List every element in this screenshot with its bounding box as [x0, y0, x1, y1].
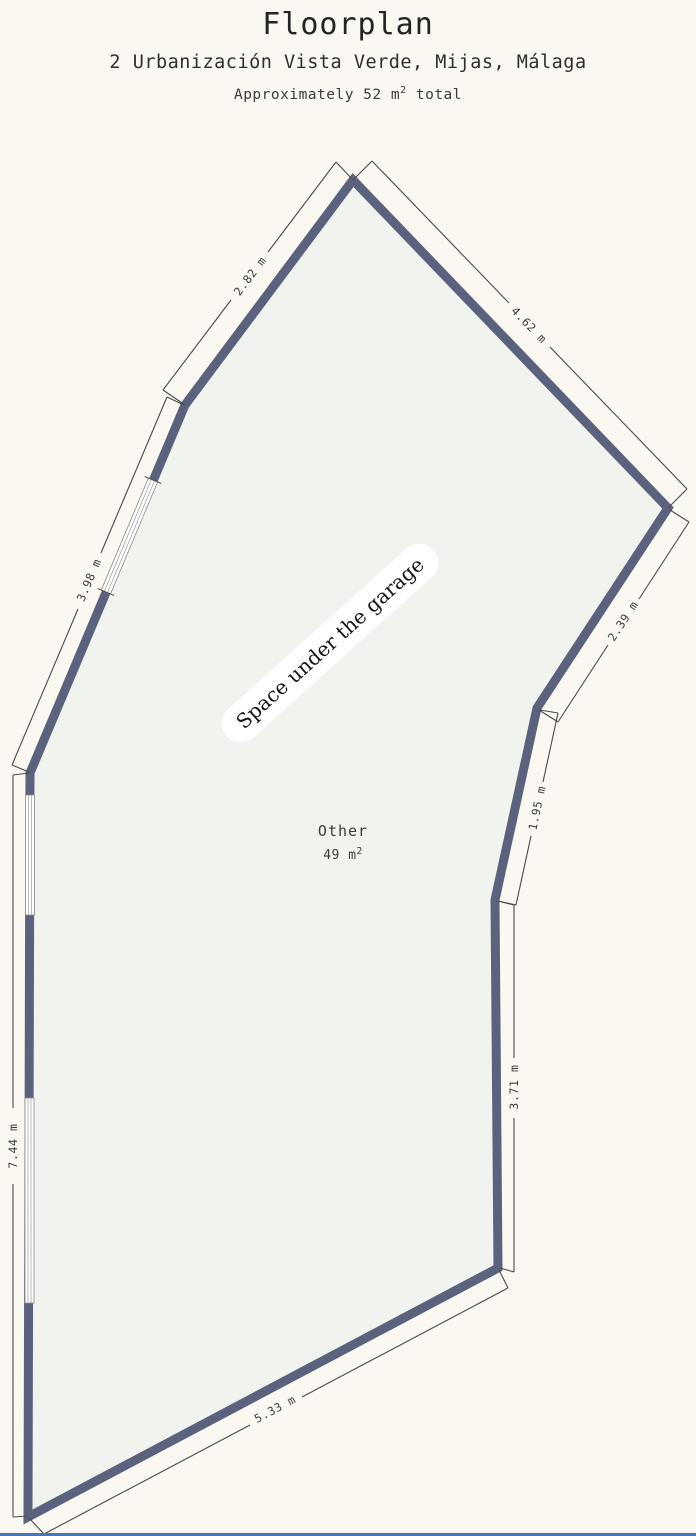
floorplan-page: Floorplan 2 Urbanización Vista Verde, Mi… [0, 0, 696, 1536]
area-note-suffix: total [407, 87, 462, 103]
dimension-label: 3.71 m [507, 1064, 521, 1109]
area-note: Approximately 52 m2 total [0, 85, 696, 103]
window-symbol-left-upper [26, 795, 35, 915]
dimension-label: 2.39 m [605, 598, 641, 643]
dimension-label: 4.62 m [508, 304, 549, 346]
floorplan-svg: 2.82 m 4.62 m 2.39 m 1.95 m 3.71 m 5.33 … [0, 0, 696, 1536]
area-note-text: Approximately 52 m [234, 87, 400, 103]
header: Floorplan 2 Urbanización Vista Verde, Mi… [0, 0, 696, 103]
dimension-label: 1.95 m [525, 784, 548, 831]
page-title: Floorplan [0, 7, 696, 42]
window-symbol-left-lower [25, 1098, 34, 1303]
room-label: Other [318, 822, 368, 840]
address-subtitle: 2 Urbanización Vista Verde, Mijas, Málag… [0, 52, 696, 73]
dimension-label: 7.44 m [6, 1123, 20, 1168]
room-area-sup: 2 [357, 846, 363, 857]
dimension-label: 2.82 m [231, 254, 269, 298]
room-area-value: 49 m [323, 848, 356, 863]
